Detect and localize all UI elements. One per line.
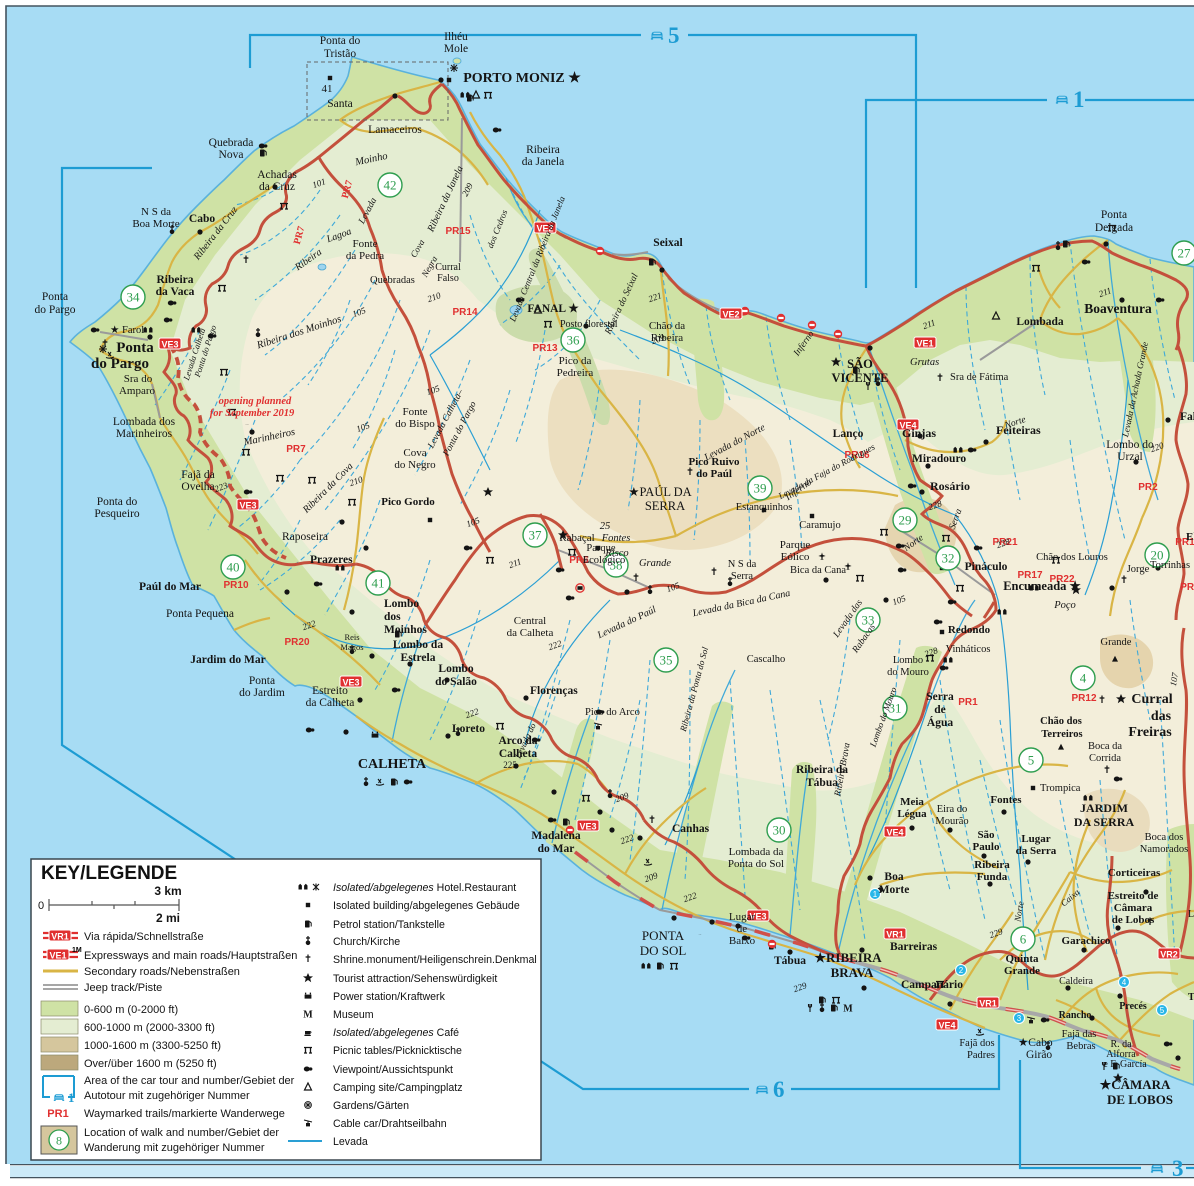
svg-text:5: 5 bbox=[668, 23, 680, 48]
svg-text:1M: 1M bbox=[72, 947, 82, 954]
svg-text:Lo: Lo bbox=[1188, 909, 1194, 920]
svg-text:VE4: VE4 bbox=[886, 828, 903, 838]
svg-text:Autotour mit zugehöriger Numme: Autotour mit zugehöriger Nummer bbox=[84, 1090, 250, 1102]
svg-text:BRAVA: BRAVA bbox=[831, 965, 874, 980]
svg-text:PR10: PR10 bbox=[223, 580, 248, 591]
svg-text:Vinháticos: Vinháticos bbox=[946, 644, 991, 655]
svg-text:Boaventura: Boaventura bbox=[1084, 301, 1152, 316]
svg-text:1000-1600 m (3300-5250 ft): 1000-1600 m (3300-5250 ft) bbox=[84, 1040, 221, 1052]
svg-text:Canhas: Canhas bbox=[672, 823, 710, 835]
svg-text:PR2: PR2 bbox=[1180, 582, 1194, 593]
svg-text:Raposeira: Raposeira bbox=[282, 531, 328, 543]
svg-text:Caramujo: Caramujo bbox=[799, 520, 840, 531]
svg-text:Fajã dos: Fajã dos bbox=[959, 1038, 994, 1049]
svg-text:Ponta do: Ponta do bbox=[97, 496, 138, 508]
svg-text:8: 8 bbox=[56, 1134, 62, 1148]
svg-text:Fajã das: Fajã das bbox=[1062, 1029, 1097, 1040]
svg-text:Moinhos: Moinhos bbox=[384, 624, 427, 636]
svg-text:Tábua: Tábua bbox=[774, 955, 806, 967]
svg-text:Lugar: Lugar bbox=[729, 911, 756, 923]
svg-text:Cova: Cova bbox=[403, 447, 426, 459]
svg-text:2 mi: 2 mi bbox=[156, 911, 180, 925]
svg-text:Boa Morte: Boa Morte bbox=[132, 218, 179, 230]
svg-text:Madalena: Madalena bbox=[531, 830, 580, 842]
svg-text:Morte: Morte bbox=[879, 884, 910, 896]
svg-text:Gardens/Gärten: Gardens/Gärten bbox=[333, 1100, 409, 1112]
svg-text:Lombo: Lombo bbox=[893, 655, 923, 666]
svg-text:Urzal: Urzal bbox=[1117, 451, 1143, 463]
svg-text:Fajã da: Fajã da bbox=[181, 469, 215, 481]
svg-text:Grande: Grande bbox=[1101, 637, 1132, 648]
svg-text:Légua: Légua bbox=[897, 808, 927, 820]
svg-text:0-600 m (0-2000 ft): 0-600 m (0-2000 ft) bbox=[84, 1004, 178, 1016]
svg-text:Barreiras: Barreiras bbox=[890, 941, 938, 953]
svg-text:★PAÚL DA: ★PAÚL DA bbox=[628, 485, 691, 499]
svg-text:6: 6 bbox=[1020, 932, 1027, 947]
svg-text:Pico do Arco: Pico do Arco bbox=[585, 707, 640, 718]
svg-text:PR13: PR13 bbox=[532, 343, 557, 354]
svg-text:Falso: Falso bbox=[437, 273, 459, 284]
svg-text:Lombo do: Lombo do bbox=[1106, 439, 1154, 451]
svg-text:Boa: Boa bbox=[884, 871, 903, 883]
svg-text:do Salão: do Salão bbox=[435, 676, 477, 688]
svg-text:Parque: Parque bbox=[586, 543, 615, 554]
svg-text:Água: Água bbox=[927, 715, 953, 729]
svg-text:Quinta: Quinta bbox=[1005, 953, 1039, 965]
svg-text:Chão dos Louros: Chão dos Louros bbox=[1036, 552, 1108, 563]
svg-text:São: São bbox=[977, 829, 995, 841]
svg-text:Bica da Cana: Bica da Cana bbox=[790, 565, 846, 576]
svg-text:do Pargo: do Pargo bbox=[35, 304, 76, 316]
svg-text:Namorados: Namorados bbox=[1140, 844, 1188, 855]
svg-text:Chão da: Chão da bbox=[649, 320, 685, 332]
svg-text:de Lobos: de Lobos bbox=[1112, 914, 1155, 926]
svg-text:da Serra: da Serra bbox=[1016, 845, 1057, 857]
svg-text:VE3: VE3 bbox=[239, 501, 256, 511]
svg-text:Quebradas: Quebradas bbox=[370, 275, 415, 286]
svg-text:30: 30 bbox=[773, 823, 786, 838]
svg-text:Parque: Parque bbox=[780, 539, 811, 551]
svg-text:das: das bbox=[1151, 709, 1172, 724]
svg-text:Ribeira: Ribeira bbox=[526, 144, 560, 156]
svg-text:VICENTE: VICENTE bbox=[832, 371, 889, 385]
svg-text:6: 6 bbox=[773, 1077, 785, 1102]
svg-text:Waymarked trails/markierte Wan: Waymarked trails/markierte Wanderwege bbox=[84, 1108, 285, 1120]
svg-text:Ponta Pequena: Ponta Pequena bbox=[166, 608, 234, 620]
svg-text:Magos: Magos bbox=[340, 642, 363, 652]
svg-text:PONTA: PONTA bbox=[642, 928, 685, 943]
svg-text:39: 39 bbox=[754, 481, 767, 496]
svg-text:Falca: Falca bbox=[1180, 411, 1194, 423]
svg-text:Ponta: Ponta bbox=[1101, 209, 1127, 221]
svg-text:Sra do: Sra do bbox=[124, 373, 153, 385]
svg-text:Ponta do Sol: Ponta do Sol bbox=[728, 858, 784, 870]
svg-text:Viewpoint/Aussichtspunkt: Viewpoint/Aussichtspunkt bbox=[333, 1064, 453, 1076]
svg-text:Funda: Funda bbox=[977, 871, 1008, 883]
svg-text:Curral: Curral bbox=[435, 262, 461, 273]
svg-text:Marinheiros: Marinheiros bbox=[116, 428, 173, 440]
svg-text:CALHETA: CALHETA bbox=[358, 757, 427, 772]
svg-text:40: 40 bbox=[227, 560, 240, 575]
svg-text:Estanquinhos: Estanquinhos bbox=[736, 502, 793, 513]
svg-text:VR1: VR1 bbox=[886, 930, 904, 940]
svg-text:Pico Gordo: Pico Gordo bbox=[381, 496, 435, 508]
svg-text:Amparo: Amparo bbox=[119, 385, 156, 397]
svg-text:Bebras: Bebras bbox=[1066, 1041, 1095, 1052]
svg-text:3 km: 3 km bbox=[154, 884, 181, 898]
svg-text:Rosário: Rosário bbox=[930, 479, 970, 493]
svg-text:225: 225 bbox=[503, 760, 517, 770]
svg-text:Delgada: Delgada bbox=[1095, 222, 1133, 234]
svg-text:Tristão: Tristão bbox=[324, 48, 356, 60]
svg-text:Ecológico: Ecológico bbox=[583, 555, 626, 566]
svg-text:Levada: Levada bbox=[333, 1136, 368, 1148]
svg-text:Cable car/Drahtseilbahn: Cable car/Drahtseilbahn bbox=[333, 1118, 447, 1130]
svg-text:Florenças: Florenças bbox=[530, 685, 578, 697]
svg-text:Pesqueiro: Pesqueiro bbox=[94, 508, 140, 520]
svg-text:Serra: Serra bbox=[926, 691, 954, 703]
svg-text:Ponta: Ponta bbox=[42, 291, 68, 303]
svg-text:5: 5 bbox=[1028, 753, 1035, 768]
svg-text:Rancho: Rancho bbox=[1059, 1010, 1092, 1021]
svg-text:PR14: PR14 bbox=[452, 307, 477, 318]
svg-text:34: 34 bbox=[127, 290, 141, 305]
svg-text:do Mouro: do Mouro bbox=[887, 667, 929, 678]
svg-text:Fonte: Fonte bbox=[352, 238, 377, 250]
svg-text:Campanário: Campanário bbox=[901, 979, 963, 991]
svg-text:Via rápida/Schnellstraße: Via rápida/Schnellstraße bbox=[84, 931, 204, 943]
svg-text:Torrinhas: Torrinhas bbox=[1150, 560, 1190, 571]
svg-text:Museum: Museum bbox=[333, 1009, 374, 1021]
svg-text:Picnic tables/Picknicktische: Picnic tables/Picknicktische bbox=[333, 1045, 462, 1057]
svg-text:Isolated/abgelegenes Hotel.Res: Isolated/abgelegenes Hotel.Restaurant bbox=[333, 882, 516, 894]
svg-text:Lombada: Lombada bbox=[1016, 316, 1064, 328]
svg-text:PORTO MONIZ ★: PORTO MONIZ ★ bbox=[463, 70, 581, 86]
svg-text:Paúl do Mar: Paúl do Mar bbox=[139, 581, 201, 593]
svg-text:Area of the car tour and numbe: Area of the car tour and number/Gebiet d… bbox=[84, 1075, 295, 1087]
svg-text:Pedreira: Pedreira bbox=[557, 367, 594, 379]
svg-text:VR2: VR2 bbox=[1160, 950, 1178, 960]
svg-text:N S da: N S da bbox=[728, 559, 757, 570]
svg-text:Chão dos: Chão dos bbox=[1040, 716, 1082, 727]
svg-text:Reis: Reis bbox=[344, 632, 359, 642]
svg-text:Lombada dos: Lombada dos bbox=[113, 416, 176, 428]
svg-text:de: de bbox=[934, 704, 946, 716]
svg-text:Ilhéu: Ilhéu bbox=[444, 31, 468, 43]
svg-text:DO SOL: DO SOL bbox=[640, 943, 687, 958]
svg-text:Corrida: Corrida bbox=[1089, 753, 1121, 764]
svg-text:VR1: VR1 bbox=[979, 999, 997, 1009]
svg-text:Ginjas: Ginjas bbox=[902, 426, 936, 440]
svg-text:Isolated building/abgelegenes: Isolated building/abgelegenes Gebäude bbox=[333, 900, 520, 912]
svg-text:Baixo: Baixo bbox=[729, 935, 756, 947]
svg-text:Lamaceiros: Lamaceiros bbox=[368, 124, 422, 136]
svg-text:★RIBEIRA: ★RIBEIRA bbox=[814, 950, 882, 965]
svg-text:Lugar: Lugar bbox=[1021, 833, 1050, 845]
svg-text:DE LOBOS: DE LOBOS bbox=[1107, 1092, 1173, 1107]
svg-text:da Janela: da Janela bbox=[522, 156, 564, 168]
svg-text:VE3: VE3 bbox=[579, 822, 596, 832]
svg-text:Fonte: Fonte bbox=[402, 406, 427, 418]
svg-text:0: 0 bbox=[38, 900, 44, 912]
svg-text:do Mar: do Mar bbox=[538, 843, 575, 855]
svg-text:Lombada da: Lombada da bbox=[729, 846, 784, 858]
svg-text:Fontes: Fontes bbox=[990, 794, 1022, 806]
svg-text:Estrela: Estrela bbox=[401, 652, 436, 664]
svg-text:Grande: Grande bbox=[639, 558, 671, 569]
svg-text:41: 41 bbox=[322, 83, 333, 95]
svg-text:Terreiros: Terreiros bbox=[1041, 729, 1082, 740]
svg-text:5: 5 bbox=[1160, 1006, 1165, 1015]
svg-text:JARDIM: JARDIM bbox=[1080, 801, 1128, 815]
svg-text:Girão: Girão bbox=[1026, 1049, 1052, 1061]
svg-text:e F. García: e F. García bbox=[1103, 1059, 1147, 1070]
svg-text:Petrol station/Tankstelle: Petrol station/Tankstelle bbox=[333, 919, 445, 931]
svg-text:Boca dos: Boca dos bbox=[1145, 832, 1184, 843]
svg-text:Camping site/Campingplatz: Camping site/Campingplatz bbox=[333, 1082, 463, 1094]
svg-text:VE1: VE1 bbox=[49, 951, 66, 961]
svg-text:Câmara: Câmara bbox=[1114, 902, 1153, 914]
svg-text:Tourist attraction/Sehenswürdi: Tourist attraction/Sehenswürdigkeit bbox=[333, 973, 497, 985]
svg-text:da Cruz: da Cruz bbox=[259, 181, 295, 193]
svg-text:36: 36 bbox=[567, 333, 581, 348]
svg-text:Meia: Meia bbox=[900, 796, 924, 808]
svg-text:Loreto: Loreto bbox=[452, 723, 485, 735]
svg-text:Nova: Nova bbox=[219, 149, 244, 161]
svg-text:Prazeres: Prazeres bbox=[310, 554, 353, 566]
svg-text:Ovelha: Ovelha bbox=[181, 481, 214, 493]
svg-text:Precés: Precés bbox=[1119, 1001, 1147, 1012]
svg-text:★Cabo: ★Cabo bbox=[1018, 1037, 1053, 1049]
svg-text:Sra de Fátima: Sra de Fátima bbox=[950, 372, 1009, 383]
svg-text:Expressways and main roads/Hau: Expressways and main roads/Hauptstraßen bbox=[84, 950, 297, 962]
svg-text:Lombo: Lombo bbox=[438, 663, 473, 675]
svg-text:Estreito de: Estreito de bbox=[1108, 890, 1159, 902]
svg-text:Lanço: Lanço bbox=[833, 428, 864, 440]
svg-text:Ponta do: Ponta do bbox=[320, 35, 361, 47]
svg-text:29: 29 bbox=[899, 513, 912, 528]
svg-text:PR20: PR20 bbox=[284, 637, 309, 648]
svg-text:da Vaca: da Vaca bbox=[156, 286, 195, 298]
svg-text:Boca da: Boca da bbox=[1088, 741, 1122, 752]
svg-text:Location of walk and number/Ge: Location of walk and number/Gebiet der bbox=[84, 1127, 279, 1139]
svg-text:Miradouro: Miradouro bbox=[912, 453, 966, 465]
svg-text:Mourão: Mourão bbox=[935, 816, 968, 827]
svg-text:VE1: VE1 bbox=[916, 339, 933, 349]
svg-text:2: 2 bbox=[959, 966, 964, 975]
svg-text:Grande: Grande bbox=[1004, 965, 1040, 977]
svg-text:Shrine.monument/Heiligenschrei: Shrine.monument/Heiligenschrein.Denkmal bbox=[333, 954, 537, 966]
svg-text:Cabo: Cabo bbox=[189, 213, 215, 225]
svg-text:25: 25 bbox=[600, 521, 611, 532]
svg-text:Encumeada ★: Encumeada ★ bbox=[1003, 579, 1081, 593]
svg-text:Secondary roads/Nebenstraßen: Secondary roads/Nebenstraßen bbox=[84, 966, 240, 978]
svg-text:★ Farol: ★ Farol bbox=[110, 325, 144, 336]
svg-text:do Jardim: do Jardim bbox=[239, 687, 285, 699]
svg-text:VE4: VE4 bbox=[938, 1021, 955, 1031]
svg-text:do Bispo: do Bispo bbox=[395, 418, 435, 430]
svg-text:Corticeiras: Corticeiras bbox=[1108, 867, 1161, 879]
svg-text:Isolated/abgelegenes Café: Isolated/abgelegenes Café bbox=[333, 1027, 459, 1039]
svg-text:da Calheta: da Calheta bbox=[306, 697, 355, 709]
svg-text:★CÂMARA: ★CÂMARA bbox=[1100, 1077, 1171, 1092]
svg-text:Caldeira: Caldeira bbox=[1059, 976, 1093, 987]
svg-text:da Calheta: da Calheta bbox=[507, 627, 554, 639]
svg-text:VE3: VE3 bbox=[161, 340, 178, 350]
svg-text:Achadas: Achadas bbox=[257, 169, 297, 181]
svg-text:Cascalho: Cascalho bbox=[747, 654, 786, 665]
svg-text:PR7: PR7 bbox=[286, 444, 306, 455]
svg-text:Elrin: Elrin bbox=[1186, 531, 1194, 543]
svg-text:Ribeira: Ribeira bbox=[156, 274, 193, 286]
svg-text:3: 3 bbox=[1172, 1156, 1184, 1181]
svg-text:4: 4 bbox=[1080, 671, 1087, 686]
svg-text:32: 32 bbox=[942, 551, 955, 566]
svg-text:41: 41 bbox=[372, 576, 385, 591]
svg-text:Grutas: Grutas bbox=[910, 357, 939, 368]
svg-text:1: 1 bbox=[873, 890, 878, 899]
svg-text:1: 1 bbox=[1073, 87, 1085, 112]
svg-text:Eólico: Eólico bbox=[781, 551, 810, 563]
svg-text:Trompica: Trompica bbox=[1040, 783, 1081, 794]
svg-text:Jeep track/Piste: Jeep track/Piste bbox=[84, 982, 162, 994]
svg-text:PR1: PR1 bbox=[47, 1108, 68, 1120]
svg-text:Lombo: Lombo bbox=[384, 598, 419, 610]
svg-text:Santa: Santa bbox=[327, 98, 353, 110]
svg-text:600-1000 m (2000-3300 ft): 600-1000 m (2000-3300 ft) bbox=[84, 1022, 215, 1034]
svg-text:Pináculo: Pináculo bbox=[965, 561, 1008, 573]
svg-text:Ponta: Ponta bbox=[116, 340, 154, 356]
svg-text:42: 42 bbox=[384, 178, 397, 193]
svg-text:opening planned: opening planned bbox=[219, 396, 292, 407]
svg-text:Padres: Padres bbox=[967, 1050, 995, 1061]
svg-text:Quebrada: Quebrada bbox=[209, 137, 254, 149]
svg-text:do Pargo: do Pargo bbox=[91, 356, 149, 372]
svg-text:Jardim do Mar: Jardim do Mar bbox=[190, 654, 265, 666]
svg-text:Garachico: Garachico bbox=[1062, 935, 1111, 947]
svg-text:da Pedra: da Pedra bbox=[346, 250, 384, 262]
svg-text:Over/über 1600 m (5250 ft): Over/über 1600 m (5250 ft) bbox=[84, 1058, 217, 1070]
svg-text:VE2: VE2 bbox=[722, 310, 739, 320]
svg-text:do Paúl: do Paúl bbox=[696, 468, 732, 480]
svg-text:de: de bbox=[737, 923, 748, 935]
svg-text:N S da: N S da bbox=[141, 206, 171, 218]
svg-text:Mole: Mole bbox=[444, 43, 468, 55]
svg-text:Ribeira: Ribeira bbox=[974, 859, 1010, 871]
svg-text:SERRA: SERRA bbox=[645, 499, 685, 513]
svg-text:Power station/Kraftwerk: Power station/Kraftwerk bbox=[333, 991, 446, 1003]
svg-text:Lombo da: Lombo da bbox=[393, 639, 443, 651]
svg-text:Paulo: Paulo bbox=[973, 841, 1000, 853]
svg-text:Wanderung mit zugehöriger Numm: Wanderung mit zugehöriger Nummer bbox=[84, 1142, 265, 1154]
svg-text:Pico da: Pico da bbox=[559, 355, 592, 367]
svg-text:PR12: PR12 bbox=[1071, 693, 1096, 704]
svg-text:Central: Central bbox=[514, 615, 546, 627]
svg-text:Estreito: Estreito bbox=[312, 685, 348, 697]
svg-text:Tábua: Tábua bbox=[806, 777, 838, 789]
svg-text:PR1: PR1 bbox=[958, 697, 978, 708]
svg-text:Curral: Curral bbox=[1131, 692, 1172, 707]
svg-text:VR1: VR1 bbox=[51, 932, 69, 942]
svg-text:do Negro: do Negro bbox=[394, 459, 436, 471]
svg-text:Ponta: Ponta bbox=[249, 675, 275, 687]
svg-text:Redondo: Redondo bbox=[948, 624, 991, 636]
svg-text:Serra: Serra bbox=[731, 571, 753, 582]
svg-text:for September 2019: for September 2019 bbox=[210, 408, 295, 419]
svg-text:1: 1 bbox=[68, 1090, 75, 1105]
svg-text:KEY/LEGENDE: KEY/LEGENDE bbox=[41, 863, 177, 884]
svg-text:DA SERRA: DA SERRA bbox=[1074, 815, 1135, 829]
svg-text:Freiras: Freiras bbox=[1128, 725, 1172, 740]
svg-text:SÃO: SÃO bbox=[847, 357, 873, 371]
svg-text:4: 4 bbox=[1122, 978, 1127, 987]
svg-text:Seixal: Seixal bbox=[653, 237, 682, 249]
svg-text:27: 27 bbox=[1178, 246, 1192, 261]
svg-text:PR2: PR2 bbox=[1138, 482, 1158, 493]
svg-text:dos: dos bbox=[384, 611, 401, 623]
svg-text:FANAL ★: FANAL ★ bbox=[527, 302, 579, 315]
svg-text:35: 35 bbox=[660, 653, 673, 668]
svg-text:Torre: Torre bbox=[1188, 992, 1194, 1003]
svg-text:Eira do: Eira do bbox=[937, 804, 968, 815]
svg-text:Poço: Poço bbox=[1053, 600, 1076, 611]
svg-text:Church/Kirche: Church/Kirche bbox=[333, 936, 400, 948]
svg-text:Jorge: Jorge bbox=[1127, 564, 1150, 575]
svg-text:3: 3 bbox=[1017, 1014, 1022, 1023]
svg-text:PR15: PR15 bbox=[445, 226, 470, 237]
svg-text:37: 37 bbox=[529, 528, 543, 543]
